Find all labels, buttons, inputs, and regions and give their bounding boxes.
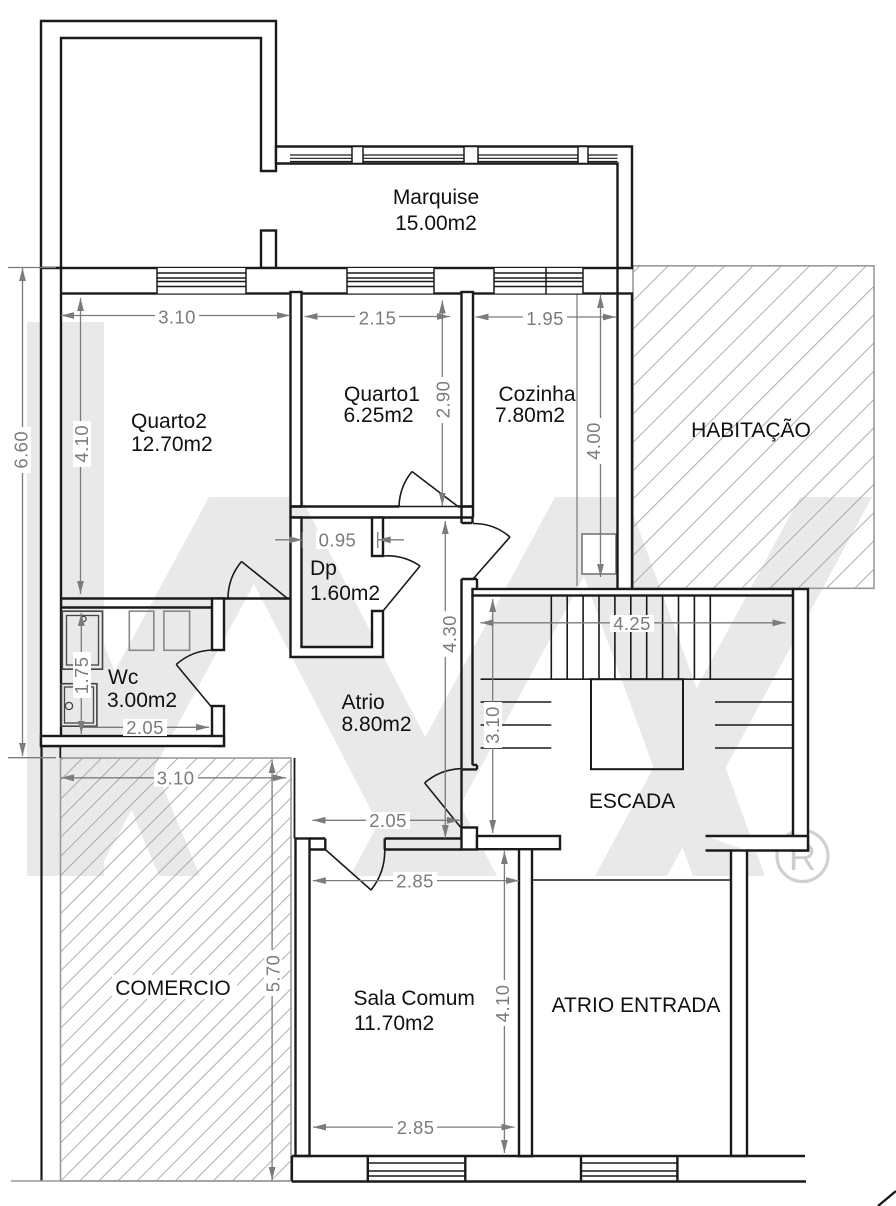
svg-text:3.10: 3.10 <box>482 706 503 744</box>
svg-text:5.70: 5.70 <box>262 955 283 993</box>
svg-text:HABITAÇÃO: HABITAÇÃO <box>691 418 811 442</box>
svg-text:12.70m2: 12.70m2 <box>131 433 213 456</box>
svg-text:4.10: 4.10 <box>71 425 92 463</box>
svg-text:Quarto1: Quarto1 <box>344 383 420 406</box>
svg-text:4.10: 4.10 <box>492 985 513 1023</box>
svg-text:Wc: Wc <box>108 666 138 689</box>
svg-text:15.00m2: 15.00m2 <box>395 212 477 235</box>
svg-text:Sala Comum: Sala Comum <box>354 987 475 1010</box>
svg-text:ATRIO ENTRADA: ATRIO ENTRADA <box>552 994 721 1017</box>
svg-text:1.95: 1.95 <box>526 308 564 329</box>
svg-text:COMERCIO: COMERCIO <box>115 977 231 1000</box>
svg-text:Dp: Dp <box>310 557 337 580</box>
svg-text:0.95: 0.95 <box>319 530 357 551</box>
svg-text:1.60m2: 1.60m2 <box>310 582 380 605</box>
svg-text:6.25m2: 6.25m2 <box>344 404 414 427</box>
svg-text:3.10: 3.10 <box>158 307 196 328</box>
svg-text:2.85: 2.85 <box>396 871 434 892</box>
svg-text:7.80m2: 7.80m2 <box>495 404 565 427</box>
svg-text:4.00: 4.00 <box>583 422 604 460</box>
svg-text:Cozinha: Cozinha <box>498 383 575 406</box>
svg-text:3.00m2: 3.00m2 <box>107 689 177 712</box>
svg-text:4.30: 4.30 <box>439 615 460 653</box>
svg-text:Marquise: Marquise <box>393 186 479 209</box>
svg-text:Quarto2: Quarto2 <box>131 410 207 433</box>
svg-text:2.15: 2.15 <box>359 308 397 329</box>
svg-text:6.60: 6.60 <box>11 431 32 469</box>
svg-text:8.80m2: 8.80m2 <box>342 713 412 736</box>
svg-text:2.05: 2.05 <box>369 810 407 831</box>
svg-text:2.05: 2.05 <box>126 717 164 738</box>
svg-text:3.10: 3.10 <box>157 767 195 788</box>
svg-text:ESCADA: ESCADA <box>589 790 675 813</box>
svg-text:11.70m2: 11.70m2 <box>354 1012 434 1035</box>
svg-text:2.85: 2.85 <box>397 1117 435 1138</box>
svg-text:4.25: 4.25 <box>613 613 651 634</box>
svg-text:Atrio: Atrio <box>342 691 385 714</box>
svg-text:1.75: 1.75 <box>71 657 92 695</box>
svg-text:2.90: 2.90 <box>433 381 454 419</box>
